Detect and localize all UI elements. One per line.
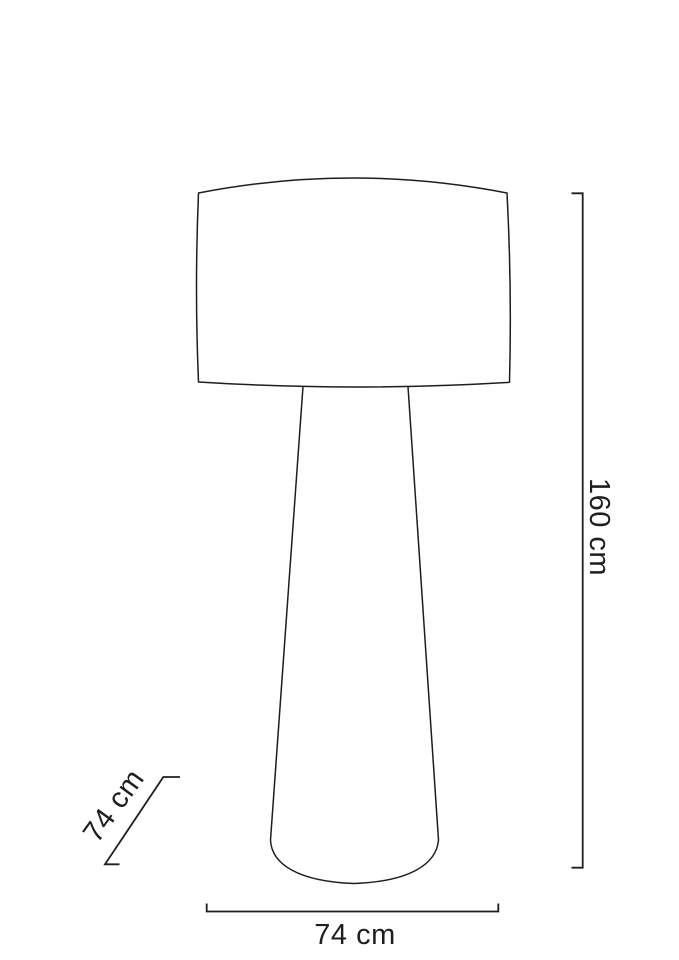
height-dimension-label: 160 cm bbox=[583, 478, 615, 576]
lamp-drawing bbox=[197, 178, 511, 884]
lamp-base-outline bbox=[271, 387, 439, 884]
width-dimension-label: 74 cm bbox=[314, 919, 395, 951]
height-dimension-line bbox=[572, 193, 583, 867]
depth-dimension-label: 74 cm bbox=[77, 764, 151, 849]
diagram-canvas: 160 cm 74 cm 74 cm bbox=[0, 0, 679, 960]
width-dimension-line bbox=[207, 904, 499, 912]
lamp-dimension-diagram: 160 cm 74 cm 74 cm bbox=[0, 0, 679, 960]
lamp-shade-outline bbox=[197, 178, 511, 387]
